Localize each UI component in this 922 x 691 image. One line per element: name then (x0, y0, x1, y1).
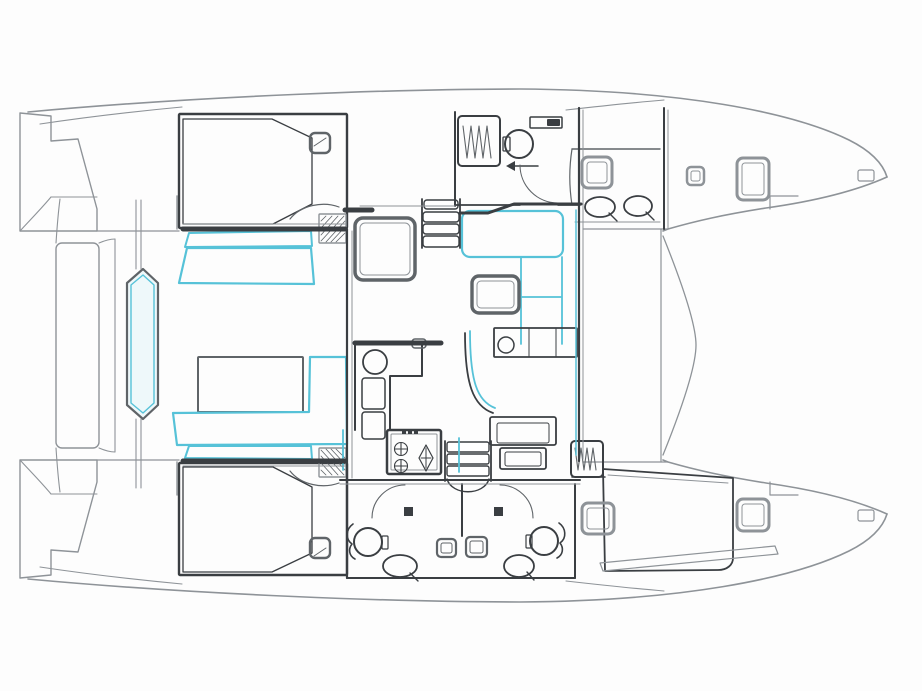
starboard-nightstand (310, 538, 330, 558)
aft-bench-inner (497, 423, 549, 443)
stove-burner-1-cross (395, 443, 407, 455)
starboard-heads-locker-1 (437, 539, 456, 557)
port-stairs-tread-3 (423, 224, 459, 234)
floorplan (0, 0, 922, 691)
port-aft-mattress (183, 119, 312, 224)
cockpit-curve-bottom (56, 448, 60, 492)
port-nightstand-detail (314, 138, 326, 146)
starboard-head-right-door-arc (500, 485, 533, 518)
galley-sink (363, 350, 387, 374)
aft-step-inner (505, 452, 541, 466)
port-head-shower (458, 116, 500, 166)
starboard-platform-curve (20, 460, 51, 494)
port-vanity-hatch-inner (587, 162, 607, 183)
port-head-door-arc (520, 165, 558, 203)
starboard-bed-foot-curve (290, 471, 339, 486)
fridge-cabinet (355, 218, 415, 280)
port-foredeck-hatch-large-inner (742, 163, 764, 195)
starboard-head-door-posts (404, 507, 503, 516)
aft-counter-dividers (529, 328, 556, 357)
stove-knobs (402, 431, 418, 434)
port-nightstand (310, 133, 330, 153)
starboard-stairs-tread-1 (447, 442, 489, 452)
cockpit-table-support-bottom (136, 419, 141, 488)
port-foredeck-inner-line (566, 100, 664, 110)
cockpit-curve-top (56, 199, 60, 243)
starboard-bowtip-detail (858, 510, 874, 521)
starboard-foredeck-inner-line (566, 581, 664, 591)
aft-bench (490, 417, 556, 445)
starboard-head-right-toilet (530, 527, 558, 555)
port-stairs-tread-1 (424, 200, 458, 209)
starboard-foredeck-hatch-inner (742, 504, 764, 526)
starboard-stairs-tread-3 (447, 466, 489, 476)
starboard-heads-locker-1-inner (441, 543, 452, 553)
aft-deck-block (56, 243, 99, 448)
starboard-stairs-tread-2 (447, 454, 489, 464)
aft-counter-sink (498, 337, 514, 353)
starboard-fwd-bed (603, 469, 733, 571)
galley-counter (355, 345, 422, 430)
port-foredeck-hatch-small-inner (691, 171, 700, 181)
port-foredeck-hatch-small (687, 167, 704, 185)
starboard-head-left-toilet (354, 528, 382, 556)
port-stairs-tread-2 (423, 212, 459, 222)
port-head-door-arrow-head (506, 161, 515, 171)
port-bowtip-detail (858, 170, 874, 181)
port-stairs-tread-4 (423, 236, 459, 247)
dinette-curved-seat (465, 333, 493, 413)
fridge-cabinet-inner (360, 223, 410, 275)
dinette-bench (462, 211, 563, 257)
port-head-toilet (505, 130, 533, 158)
floorplan-svg (0, 0, 922, 691)
galley-cabinet-2 (362, 412, 385, 439)
starboard-cockpit-sofa (173, 357, 347, 445)
cockpit-table-support-top (136, 200, 141, 269)
port-head-shower-glass (463, 126, 491, 158)
starboard-deck-edge (28, 514, 887, 602)
port-vanity-sink-1-faucet (609, 213, 617, 221)
port-platform-curve (20, 197, 51, 231)
starboard-heads-locker-2-inner (470, 541, 483, 553)
dinette-table-inner (477, 281, 514, 308)
starboard-aft-mattress (183, 467, 312, 572)
starboard-cockpit-sofa-band (185, 446, 312, 459)
port-cockpit-sofa (179, 248, 314, 284)
cockpit-bench (198, 357, 303, 412)
port-head-shelf-dark (547, 119, 560, 126)
starboard-cabin-hatch-inner (587, 508, 609, 529)
aft-deck-conn-bottom (99, 448, 115, 452)
port-aft-bed (179, 114, 347, 228)
port-vanity-curve (570, 149, 572, 205)
starboard-head-left-sink (383, 555, 417, 577)
nacelle-curve (663, 236, 696, 455)
starboard-bow-inner-edge (663, 460, 887, 514)
aft-deck-conn-top (99, 239, 115, 243)
port-cockpit-sofa-band (185, 231, 312, 247)
starboard-head-left-door-arc (372, 485, 405, 518)
starboard-side-plank (600, 546, 778, 571)
starboard-head-right-sink (504, 555, 534, 577)
starboard-heads-locker-2 (466, 537, 487, 557)
port-vanity-sink-2-faucet (646, 212, 654, 220)
starboard-nightstand-detail (314, 548, 326, 556)
galley-cabinet-1 (362, 378, 385, 409)
